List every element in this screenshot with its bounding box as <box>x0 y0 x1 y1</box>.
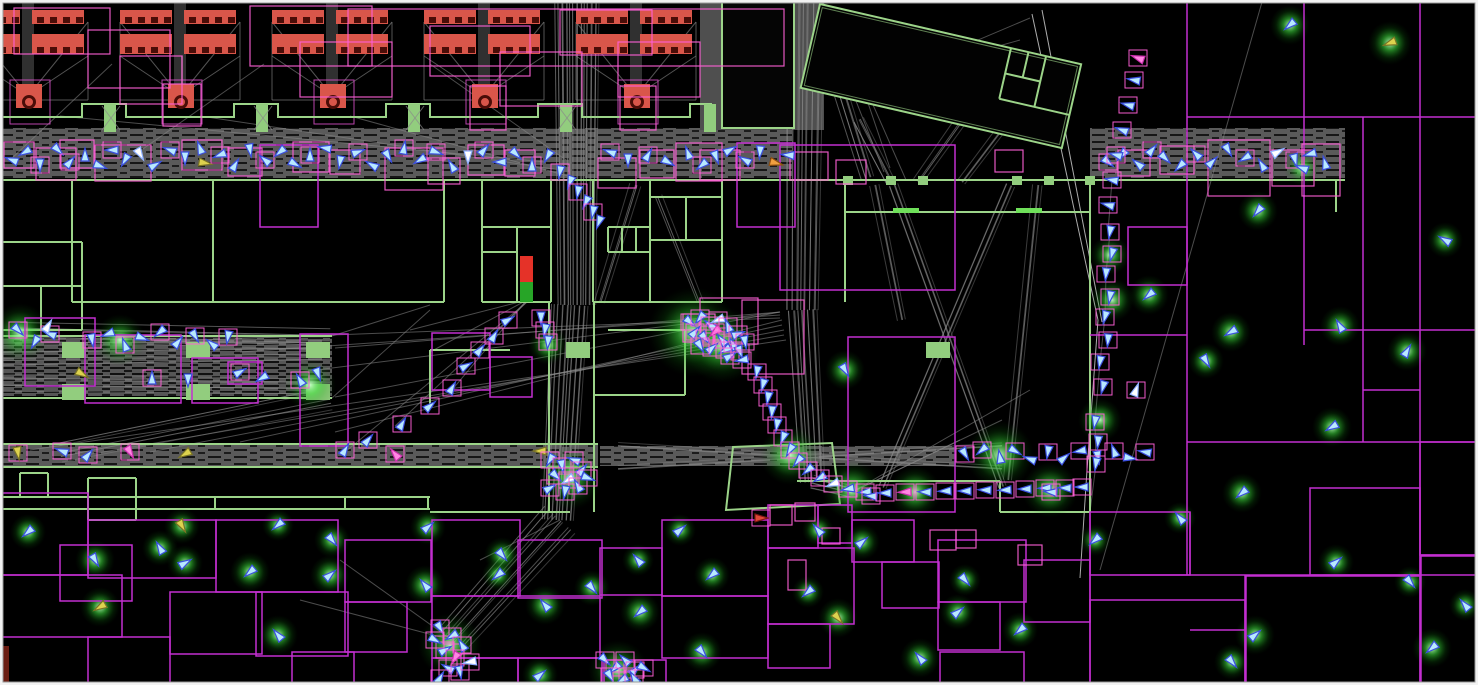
crowd-glow <box>1078 398 1122 442</box>
furniture-notch <box>380 47 387 53</box>
furniture-notch <box>493 47 500 53</box>
furniture-notch <box>429 17 436 23</box>
furniture-notch <box>215 47 222 53</box>
furniture-notch <box>202 17 209 23</box>
furniture-notch <box>37 47 44 53</box>
furniture-notch <box>37 17 44 23</box>
furniture-notch <box>658 17 665 23</box>
door-post <box>918 176 928 185</box>
indicator-green-bar <box>520 282 533 302</box>
furniture-notch <box>63 17 70 23</box>
furniture-notch <box>442 47 449 53</box>
furniture-notch <box>532 17 539 23</box>
furniture-notch <box>645 47 652 53</box>
furniture-notch <box>125 17 132 23</box>
furniture-notch <box>228 17 235 23</box>
furniture-notch <box>442 17 449 23</box>
road-band <box>0 128 792 178</box>
furniture-notch <box>277 17 284 23</box>
furniture-notch <box>138 47 145 53</box>
furniture-notch <box>341 47 348 53</box>
indicator-red-bar <box>520 256 533 282</box>
furniture-notch <box>303 47 310 53</box>
furniture-notch <box>506 17 513 23</box>
furniture-notch <box>202 47 209 53</box>
game-window <box>0 0 1478 685</box>
furniture-notch <box>215 17 222 23</box>
platform-post <box>408 104 420 132</box>
crowd-glow <box>284 359 336 411</box>
platform-post <box>560 104 572 132</box>
furniture-notch <box>493 17 500 23</box>
furniture-notch <box>594 47 601 53</box>
furniture-notch <box>12 17 19 23</box>
furniture-notch <box>50 17 57 23</box>
furniture-notch <box>277 47 284 53</box>
furniture-notch <box>341 17 348 23</box>
furniture-notch <box>63 47 70 53</box>
door-post <box>886 176 896 185</box>
furniture-notch <box>303 17 310 23</box>
furniture-notch <box>354 47 361 53</box>
furniture-notch <box>50 47 57 53</box>
empty-module <box>722 2 794 128</box>
furniture-notch <box>684 17 691 23</box>
platform-post <box>256 104 268 132</box>
door-threshold <box>893 208 919 213</box>
furniture-notch <box>455 47 462 53</box>
crowd-glow <box>889 466 941 518</box>
platform-post <box>104 104 116 132</box>
furniture-notch <box>367 47 374 53</box>
furniture-notch <box>189 47 196 53</box>
furniture-notch <box>468 47 475 53</box>
door-post <box>1012 176 1022 185</box>
furniture-notch <box>151 17 158 23</box>
furniture-notch <box>581 17 588 23</box>
furniture-notch <box>620 47 627 53</box>
furniture-notch <box>228 47 235 53</box>
furniture-notch <box>645 17 652 23</box>
furniture-notch <box>367 17 374 23</box>
furniture-notch <box>164 17 171 23</box>
furniture-notch <box>658 47 665 53</box>
furniture-notch <box>380 17 387 23</box>
furniture-notch <box>290 17 297 23</box>
furniture-notch <box>125 47 132 53</box>
furniture-notch <box>76 47 83 53</box>
furniture-notch <box>671 47 678 53</box>
pillar <box>186 384 210 400</box>
furniture-notch <box>12 47 19 53</box>
furniture-notch <box>671 17 678 23</box>
game-viewport[interactable] <box>0 0 1478 685</box>
pillar <box>926 342 950 358</box>
nav-edge <box>573 0 574 305</box>
furniture-notch <box>189 17 196 23</box>
furniture-notch <box>607 47 614 53</box>
furniture-notch <box>316 17 323 23</box>
furniture-notch <box>151 47 158 53</box>
furniture-notch <box>594 17 601 23</box>
platform-post <box>704 104 716 132</box>
furniture-notch <box>519 17 526 23</box>
furniture-notch <box>684 47 691 53</box>
furniture-notch <box>455 17 462 23</box>
pillar <box>566 342 590 358</box>
pillar <box>62 342 86 358</box>
furniture-notch <box>620 17 627 23</box>
furniture-notch <box>354 17 361 23</box>
furniture-notch <box>138 17 145 23</box>
furniture-notch <box>290 47 297 53</box>
furniture-notch <box>607 17 614 23</box>
door-post <box>1085 176 1095 185</box>
furniture-notch <box>468 17 475 23</box>
furniture-notch <box>76 17 83 23</box>
furniture-notch <box>316 47 323 53</box>
door-threshold <box>1016 208 1042 213</box>
pillar <box>306 342 330 358</box>
door-post <box>1044 176 1054 185</box>
